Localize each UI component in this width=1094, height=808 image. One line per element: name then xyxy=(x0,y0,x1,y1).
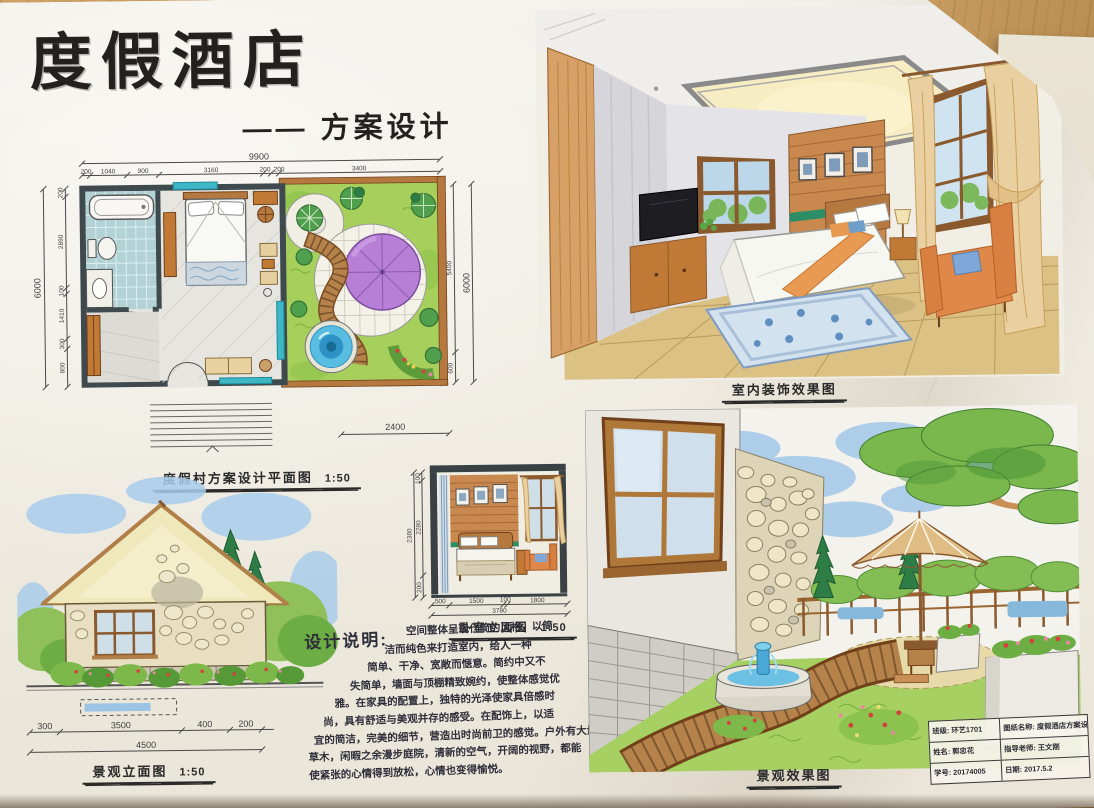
tv xyxy=(639,188,698,241)
cabinet-plan xyxy=(253,191,277,204)
student-name-cell: 姓名:郭忠花 xyxy=(930,740,1001,763)
dim-label: 200 xyxy=(274,166,285,173)
landscape-render-label-text: 景观效果图 xyxy=(756,768,831,784)
window-strip-bottom xyxy=(220,377,272,384)
chair-plan xyxy=(260,271,277,284)
dim-label: 900 xyxy=(138,168,149,175)
floor-plan-drawing: 9900 200 1040 900 3160 200 200 3400 6000… xyxy=(7,148,526,464)
dim-label: 1500 xyxy=(469,598,484,605)
plan-dim-left xyxy=(40,186,70,390)
small-planter xyxy=(936,634,980,673)
interior-render-label: 室内装饰效果图 xyxy=(722,378,847,403)
student-id-value: 20174005 xyxy=(953,766,986,776)
student-name-value: 郭忠花 xyxy=(952,746,974,756)
landscape-elevation-dims: 300 3500 400 200 4500 xyxy=(22,717,302,762)
dim-label: 3500 xyxy=(111,720,131,730)
pebble-wall xyxy=(734,448,827,661)
throw-pillow xyxy=(952,251,981,275)
landscape-elevation-label: 景观立面图1:50 xyxy=(82,760,215,785)
dim-label: 2380 xyxy=(406,528,413,543)
dim-label: 1800 xyxy=(530,597,545,604)
bench xyxy=(894,674,928,682)
dim-label: 200 xyxy=(81,169,92,176)
pool-section xyxy=(81,699,177,716)
dim-label: 800 xyxy=(59,362,66,373)
bed-plan xyxy=(183,192,248,286)
dim-label: 3780 xyxy=(492,608,507,615)
dim-label: 6000 xyxy=(32,278,42,298)
elev-bed xyxy=(457,532,516,581)
dim-label: 5400 xyxy=(446,261,453,276)
toilet xyxy=(88,240,96,258)
date-value: 2017.5.2 xyxy=(1024,764,1053,774)
landscape-elevation-label-text: 景观立面图 xyxy=(92,764,167,780)
dim-label: 600 xyxy=(447,362,454,373)
landscape-elevation-drawing xyxy=(16,471,339,720)
dim-label: 2890 xyxy=(58,234,65,249)
dim-label: 200 xyxy=(238,719,253,729)
presentation-board-paper: 度假酒店 —— 方案设计 9900 200 1040 900 3160 200 … xyxy=(0,0,1094,808)
drawing-name-cell: 图纸名称:度假酒店方案设计 xyxy=(999,715,1088,739)
dim-label: 200 xyxy=(57,187,64,198)
class-cell: 班级:环艺1701 xyxy=(929,719,1000,742)
drawing-name-label: 图纸名称: xyxy=(1003,722,1035,732)
advisor-cell: 指导老师:王文刚 xyxy=(1000,736,1089,760)
advisor-value: 王文刚 xyxy=(1038,742,1060,752)
student-name-label: 姓名: xyxy=(933,747,950,757)
class-value: 环艺1701 xyxy=(951,725,982,735)
design-notes-heading: 设计说明: xyxy=(304,625,389,653)
wood-column xyxy=(548,47,598,358)
dim-label: 1040 xyxy=(101,168,116,175)
drawing-name-value: 度假酒店方案设计 xyxy=(1037,720,1088,732)
dim-label: 9900 xyxy=(249,151,269,161)
dim-label: 200 xyxy=(416,582,423,593)
dim-label: 300 xyxy=(37,721,52,731)
student-id-cell: 学号:20174005 xyxy=(931,761,1002,784)
chair-plan xyxy=(260,243,277,256)
student-id-label: 学号: xyxy=(934,768,951,778)
pond-plan xyxy=(305,320,358,373)
courtyard-garden-plan xyxy=(279,176,448,387)
interior-render-label-text: 室内装饰效果图 xyxy=(732,381,837,397)
dim-label: 2280 xyxy=(415,520,422,535)
dim-label: 2400 xyxy=(385,422,405,432)
landscape-elevation-scale: 1:50 xyxy=(179,766,205,778)
umbrella-plan xyxy=(344,234,421,311)
bedroom-elevation-drawing: 2380 100 2280 200 500 1500 100 1800 3780 xyxy=(405,446,587,626)
dim-label: 100 xyxy=(415,473,422,484)
dim-label: 100 xyxy=(500,596,511,603)
dim-label: 6000 xyxy=(461,273,471,293)
interior-perspective-rendering xyxy=(535,4,1065,382)
dim-label: 200 xyxy=(260,166,271,173)
title-block: 班级:环艺1701 图纸名称:度假酒店方案设计 姓名:郭忠花 指导老师:王文刚 … xyxy=(928,714,1091,785)
dim-label: 500 xyxy=(435,598,446,605)
photo-of-drawing: 度假酒店 —— 方案设计 9900 200 1040 900 3160 200 … xyxy=(0,0,1094,808)
guestroom-plan xyxy=(82,181,284,388)
dim-label: 4500 xyxy=(136,740,156,750)
tv-cabinet-plan xyxy=(164,213,177,277)
dim-label: 100 xyxy=(58,285,65,296)
dim-label: 1410 xyxy=(59,308,66,323)
window-strip-top xyxy=(173,182,217,190)
right-window xyxy=(928,77,994,234)
dim-label: 400 xyxy=(197,719,212,729)
dim-label: 3160 xyxy=(204,167,219,174)
stool-plan xyxy=(259,359,271,371)
steps-hatch xyxy=(150,403,273,452)
class-label: 班级: xyxy=(932,726,949,736)
board-title: 度假酒店 xyxy=(29,9,314,102)
deck-dimension: 2400 xyxy=(335,419,455,440)
board-subtitle: —— 方案设计 xyxy=(242,103,453,148)
landscape-render-label: 景观效果图 xyxy=(746,764,841,788)
dim-label: 300 xyxy=(59,338,66,349)
dim-label: 3400 xyxy=(352,165,367,172)
date-cell: 日期:2017.5.2 xyxy=(1001,757,1090,781)
date-label: 日期: xyxy=(1005,765,1022,775)
glass-door-strip xyxy=(277,301,285,359)
entry-opening xyxy=(168,378,208,387)
advisor-label: 指导老师: xyxy=(1004,743,1036,753)
